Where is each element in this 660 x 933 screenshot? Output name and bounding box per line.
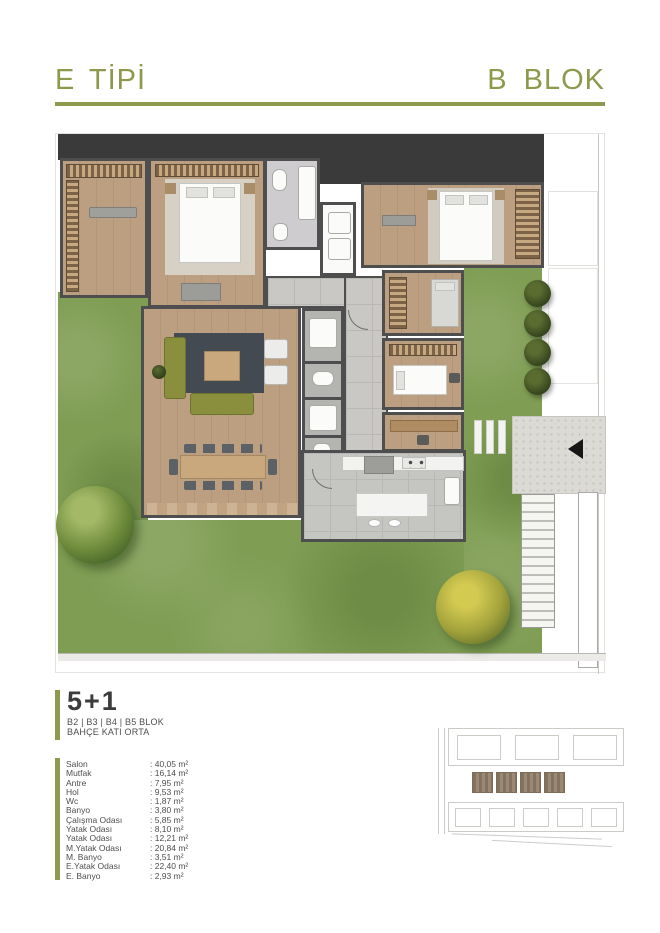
room-bedroom-e [361,182,544,268]
wall-divider [305,397,341,400]
dining-chairs [184,444,262,453]
pillow [445,195,464,205]
site-building-outline [489,808,515,827]
floor-plan [55,133,605,673]
site-road-line [452,833,602,839]
single-bed [393,365,447,395]
unit-blocks-floor: B2 | B3 | B4 | B5 BLOK BAHÇE KATI ORTA [67,718,164,737]
armchair [264,365,288,385]
list-item: Yatak Odası: 8,10 m² [66,824,256,833]
washer [328,238,351,260]
nightstand [244,183,255,194]
bathtub [298,166,316,220]
tree-icon [56,486,134,564]
header-rule [55,102,605,106]
site-row-top [448,728,624,766]
toilet [273,223,288,241]
site-boundary-line [438,728,439,834]
desk [390,420,458,432]
sofa [164,337,186,399]
wardrobe [155,164,259,177]
list-item: Mutfak: 16,14 m² [66,768,256,777]
dining-table [180,455,266,479]
list-item: E. Banyo: 2,93 m² [66,871,256,880]
wall-divider [305,435,341,438]
bench [382,215,416,226]
brochure-page: E TİPİ B BLOK [0,0,660,933]
site-building-highlighted [520,772,541,793]
direction-arrow-icon [568,439,583,459]
site-building-outline [557,808,583,827]
room-living [141,306,301,518]
unit-floor-label: BAHÇE KATI ORTA [67,728,164,738]
accent-bar [55,690,60,740]
room-area: : 2,93 m² [150,871,184,881]
site-building-outline [455,808,481,827]
room-study [382,412,464,452]
walkway-box-top [548,191,598,266]
block-title: B BLOK [0,64,605,97]
kitchen-island [356,493,428,517]
stepping-stone [486,420,494,454]
double-bed [179,183,241,263]
stool [368,519,381,527]
stepping-stone [474,420,482,454]
deck-strip [147,503,297,515]
site-building-outline [573,735,617,760]
room-name: E. Banyo [66,871,101,881]
bush-icon [524,280,551,307]
pillow [435,282,455,291]
room-wc [320,202,356,276]
list-item: Antre: 7,95 m² [66,778,256,787]
double-bed [439,191,493,261]
wardrobe [66,164,142,178]
room-master-bedroom [148,158,266,308]
sink [312,371,334,386]
dining-chair [268,459,277,475]
pillow [469,195,488,205]
unit-type-label: 5+1 [67,686,119,717]
desk-chair [449,373,460,383]
nightstand [427,190,437,200]
list-item: Banyo: 3,80 m² [66,805,256,814]
washer [328,212,351,234]
list-item: E.Yatak Odası: 22,40 m² [66,861,256,870]
list-item: M.Yatak Odası: 20,84 m² [66,843,256,852]
site-row-bottom [448,802,624,832]
list-item: Çalışma Odası: 5,85 m² [66,815,256,824]
wardrobe [389,277,407,329]
bush-icon [524,339,551,366]
sink [272,169,287,191]
room-master-bathroom [264,158,320,250]
list-item: Yatak Odası: 12,21 m² [66,833,256,842]
stairs [521,494,555,628]
site-building-outline [591,808,617,827]
stepping-stone [498,420,506,454]
tree-icon [436,570,510,644]
range-hood [364,456,394,474]
wardrobe [515,189,540,259]
stool [388,519,401,527]
list-item: M. Banyo: 3,51 m² [66,852,256,861]
site-building-highlighted [496,772,517,793]
room-area-list: Salon: 40,05 m² Mutfak: 16,14 m² Antre: … [66,759,256,880]
bush-icon [524,310,551,337]
single-bed [431,279,459,327]
site-boundary-line [444,728,445,834]
list-item: Wc: 1,87 m² [66,796,256,805]
sink [444,477,460,505]
pillow [396,371,405,390]
bathtub [309,318,337,348]
room-kitchen [301,450,466,542]
room-bathrooms [302,308,344,468]
concrete-patio [512,416,606,494]
walkway-divider-line [598,134,599,674]
dining-chairs [184,481,262,490]
site-building-highlighted [472,772,493,793]
bush-icon [524,368,551,395]
dresser [181,283,221,301]
desk-chair [417,435,429,445]
wall-divider [305,361,341,364]
door-arc [312,469,332,489]
roof-band-deep [306,134,544,184]
site-building-outline [523,808,549,827]
site-building-highlighted [544,772,565,793]
room-bedroom-1 [382,270,464,336]
room-terrace [60,158,148,298]
coffee-table [204,351,240,381]
accent-bar [55,758,60,880]
sofa [190,393,254,415]
walkway-box-mid [548,268,598,384]
site-building-outline [515,735,559,760]
room-bedroom-2 [382,338,464,410]
site-building-outline [457,735,501,760]
bathtub [309,405,337,431]
plan-bottom-strip [58,653,606,661]
pillow [186,187,208,198]
site-road-line [492,840,612,847]
stair-rail [578,492,598,668]
wardrobe [66,180,79,292]
stove [402,457,426,469]
dining-chair [169,459,178,475]
armchair [264,339,288,359]
bench [89,207,137,218]
list-item: Salon: 40,05 m² [66,759,256,768]
site-plan [432,716,647,856]
pillow [213,187,235,198]
nightstand [165,183,176,194]
plant [152,365,166,379]
nightstand [495,190,505,200]
list-item: Hol: 9,53 m² [66,787,256,796]
wardrobe [389,344,457,356]
